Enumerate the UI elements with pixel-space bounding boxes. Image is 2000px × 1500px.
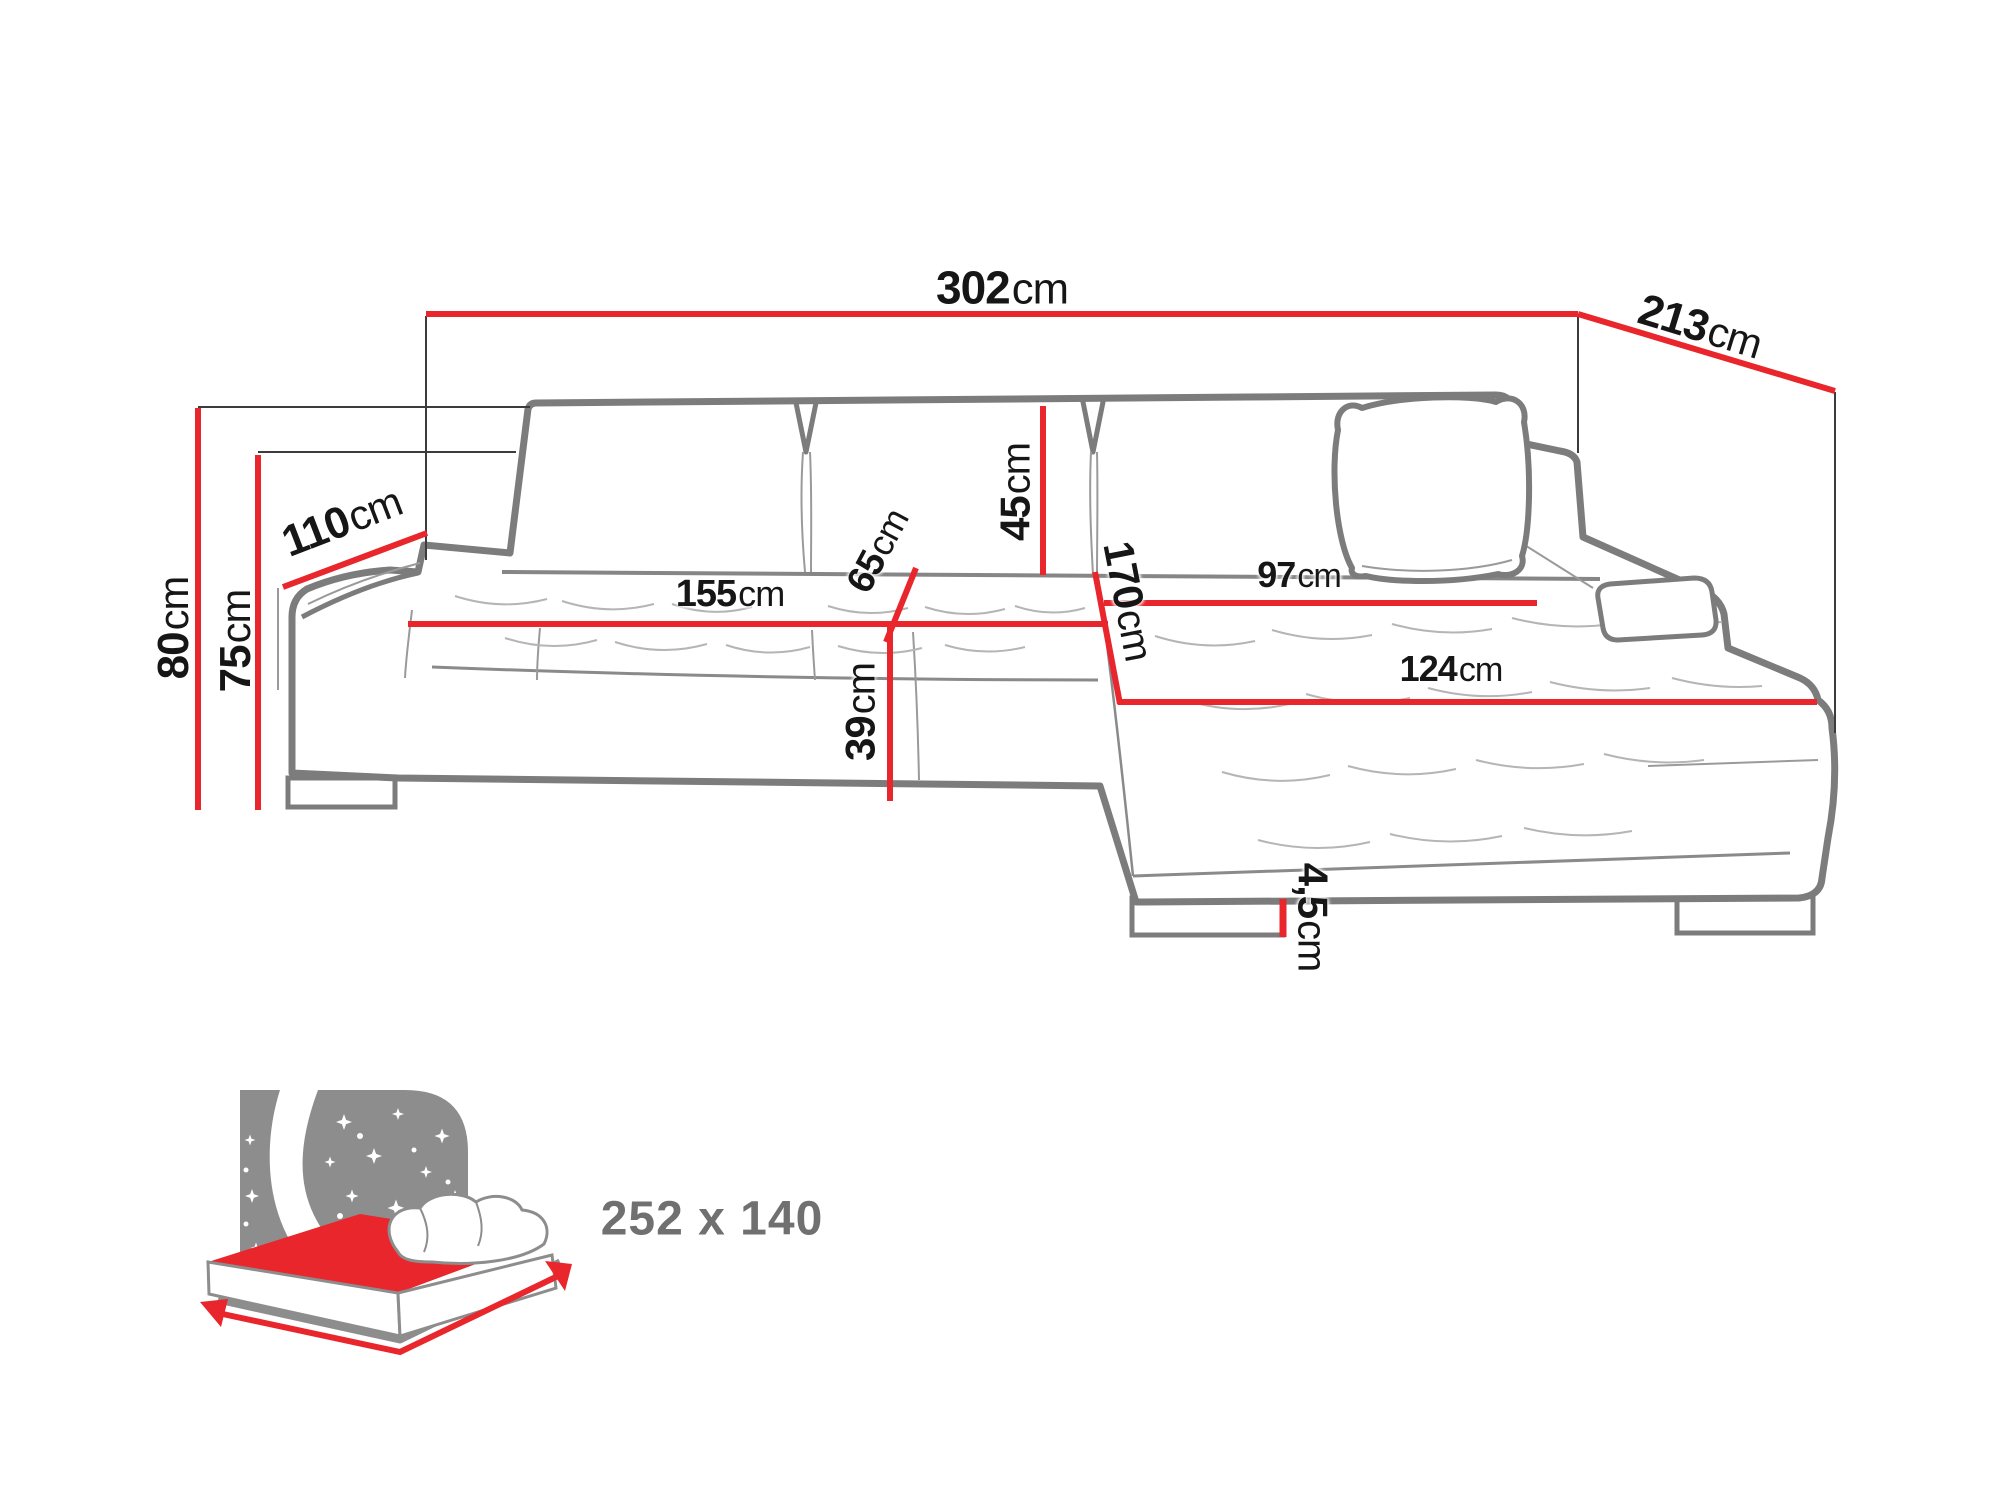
label-total-height: 80cm <box>152 577 196 680</box>
label-back-cushion-height: 45cm <box>995 443 1038 541</box>
label-seat-width: 155cm <box>676 575 785 613</box>
label-leg-height: 4,5cm <box>1291 863 1334 972</box>
label-chaise-width-back: 97cm <box>1257 557 1341 593</box>
sofa-illustration <box>278 395 1835 935</box>
sleeping-area-size: 252 x 140 <box>601 1192 824 1247</box>
label-chaise-width-front: 124cm <box>1400 651 1503 687</box>
chaise-armrest-pad <box>1598 578 1716 640</box>
diagram-canvas <box>0 0 2000 1500</box>
label-total-width: 302cm <box>936 265 1068 312</box>
front-left-leg <box>288 778 395 807</box>
product-dimensions-diagram: 302cm 213cm 110cm 80cm 75cm 155cm 65cm 4… <box>0 0 2000 1500</box>
back-pillow <box>1334 397 1529 581</box>
sleeping-function-icon <box>200 1090 572 1352</box>
label-seat-height: 39cm <box>840 663 883 761</box>
label-backrest-height: 75cm <box>214 590 258 693</box>
sofa-outline <box>292 395 1835 902</box>
